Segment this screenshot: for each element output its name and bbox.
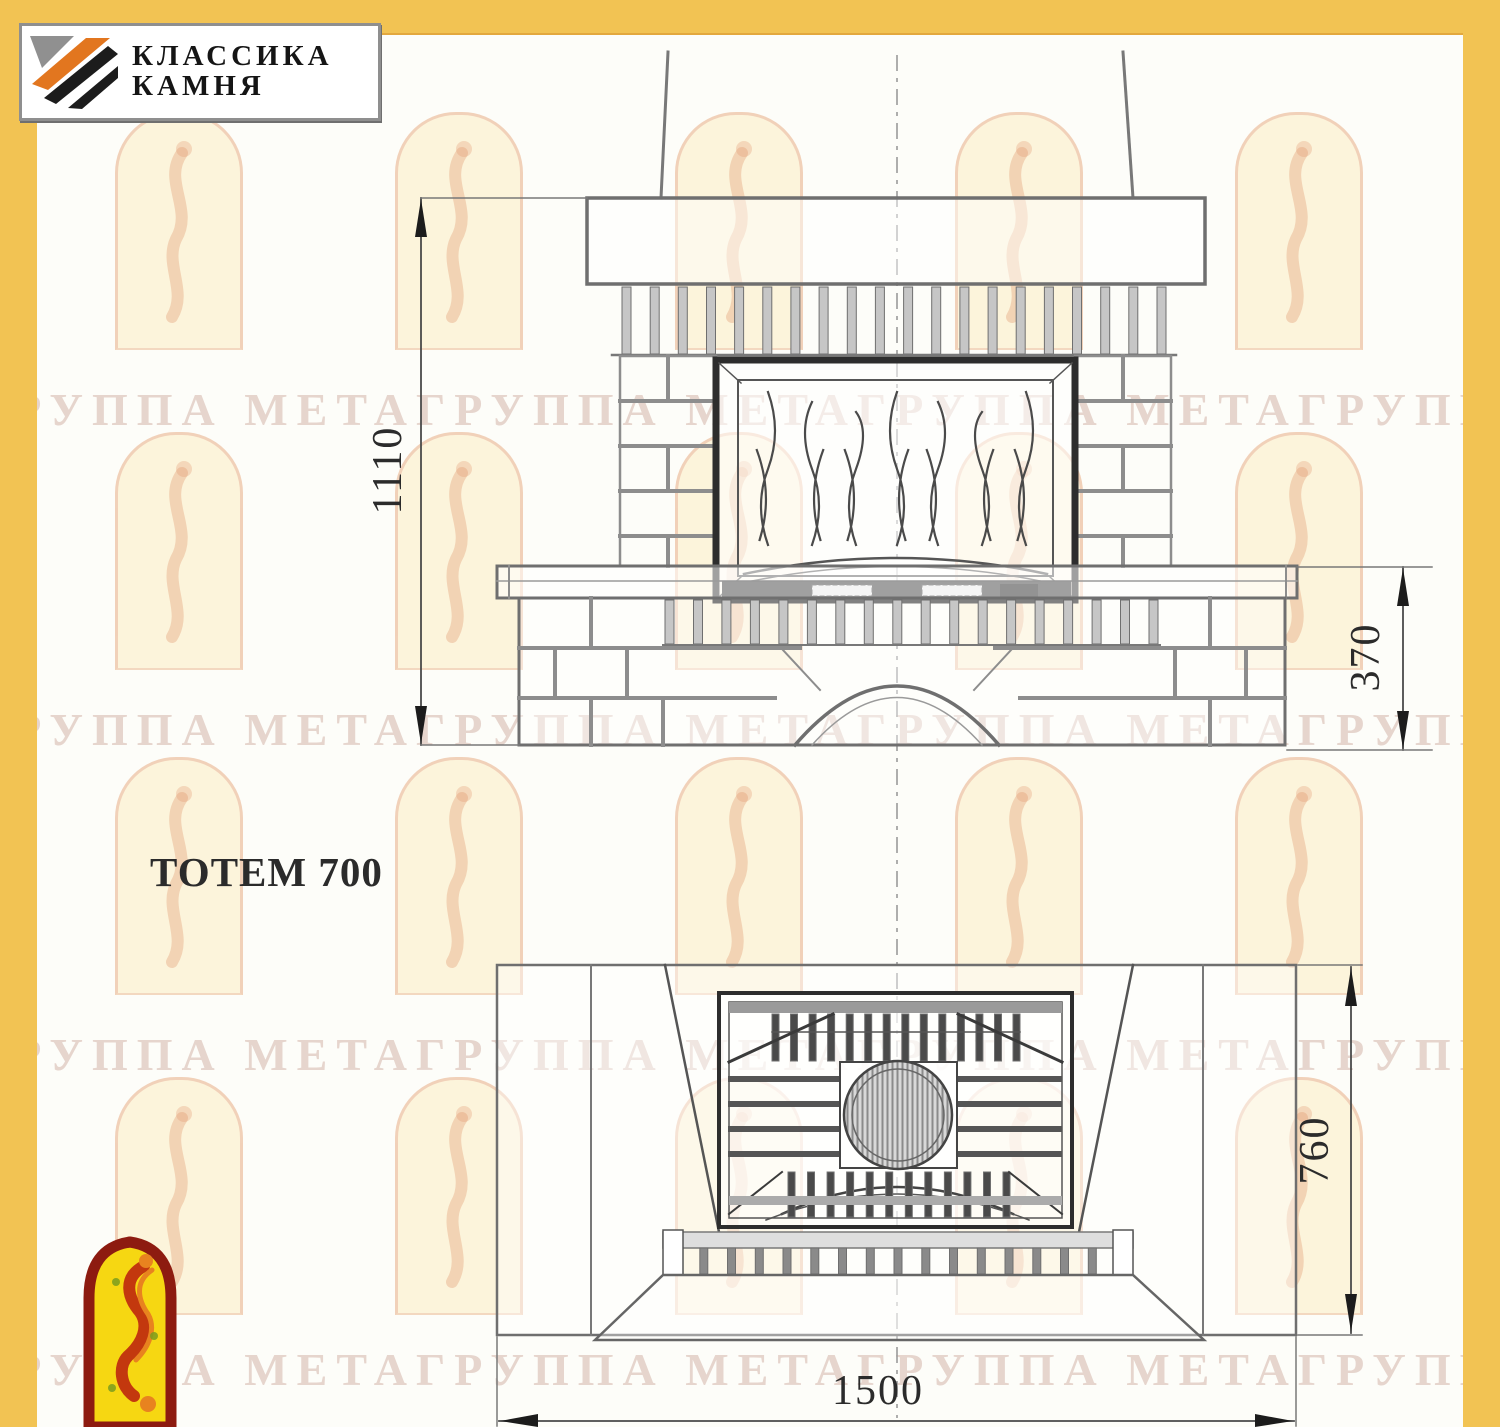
drawing-title: ТОТЕМ 700 bbox=[150, 848, 440, 896]
dentil-course bbox=[622, 287, 1166, 354]
left-pillar-bricks bbox=[620, 356, 716, 566]
flue-collar bbox=[844, 1061, 952, 1169]
depth-label: 760 bbox=[1293, 1090, 1337, 1210]
right-border bbox=[1463, 33, 1500, 1427]
bench-slab bbox=[497, 566, 1297, 598]
plan-hearth-slab bbox=[595, 1275, 1204, 1340]
fireplace-technical-drawing bbox=[0, 0, 1500, 1427]
width-label: 1500 bbox=[798, 1368, 958, 1414]
plan-front-band bbox=[595, 1230, 1204, 1340]
brand-logo: КЛАССИКА КАМНЯ bbox=[19, 23, 381, 121]
plan-firebox-insert bbox=[719, 993, 1072, 1227]
bench-height-label: 370 bbox=[1344, 597, 1388, 717]
firebox-insert bbox=[716, 360, 1075, 600]
brand-logo-line1: КЛАССИКА bbox=[132, 42, 333, 72]
jester-emblem bbox=[82, 1236, 178, 1427]
top-plan-view bbox=[497, 965, 1362, 1427]
diagonal-stone-stripes-icon bbox=[22, 32, 122, 112]
brand-logo-line2: КАМНЯ bbox=[132, 72, 333, 102]
mantel-shelf bbox=[587, 198, 1205, 284]
overall-height-label: 1110 bbox=[366, 390, 410, 550]
front-elevation-view bbox=[415, 52, 1432, 750]
left-border bbox=[0, 33, 37, 1427]
right-pillar-bricks bbox=[1075, 356, 1171, 566]
